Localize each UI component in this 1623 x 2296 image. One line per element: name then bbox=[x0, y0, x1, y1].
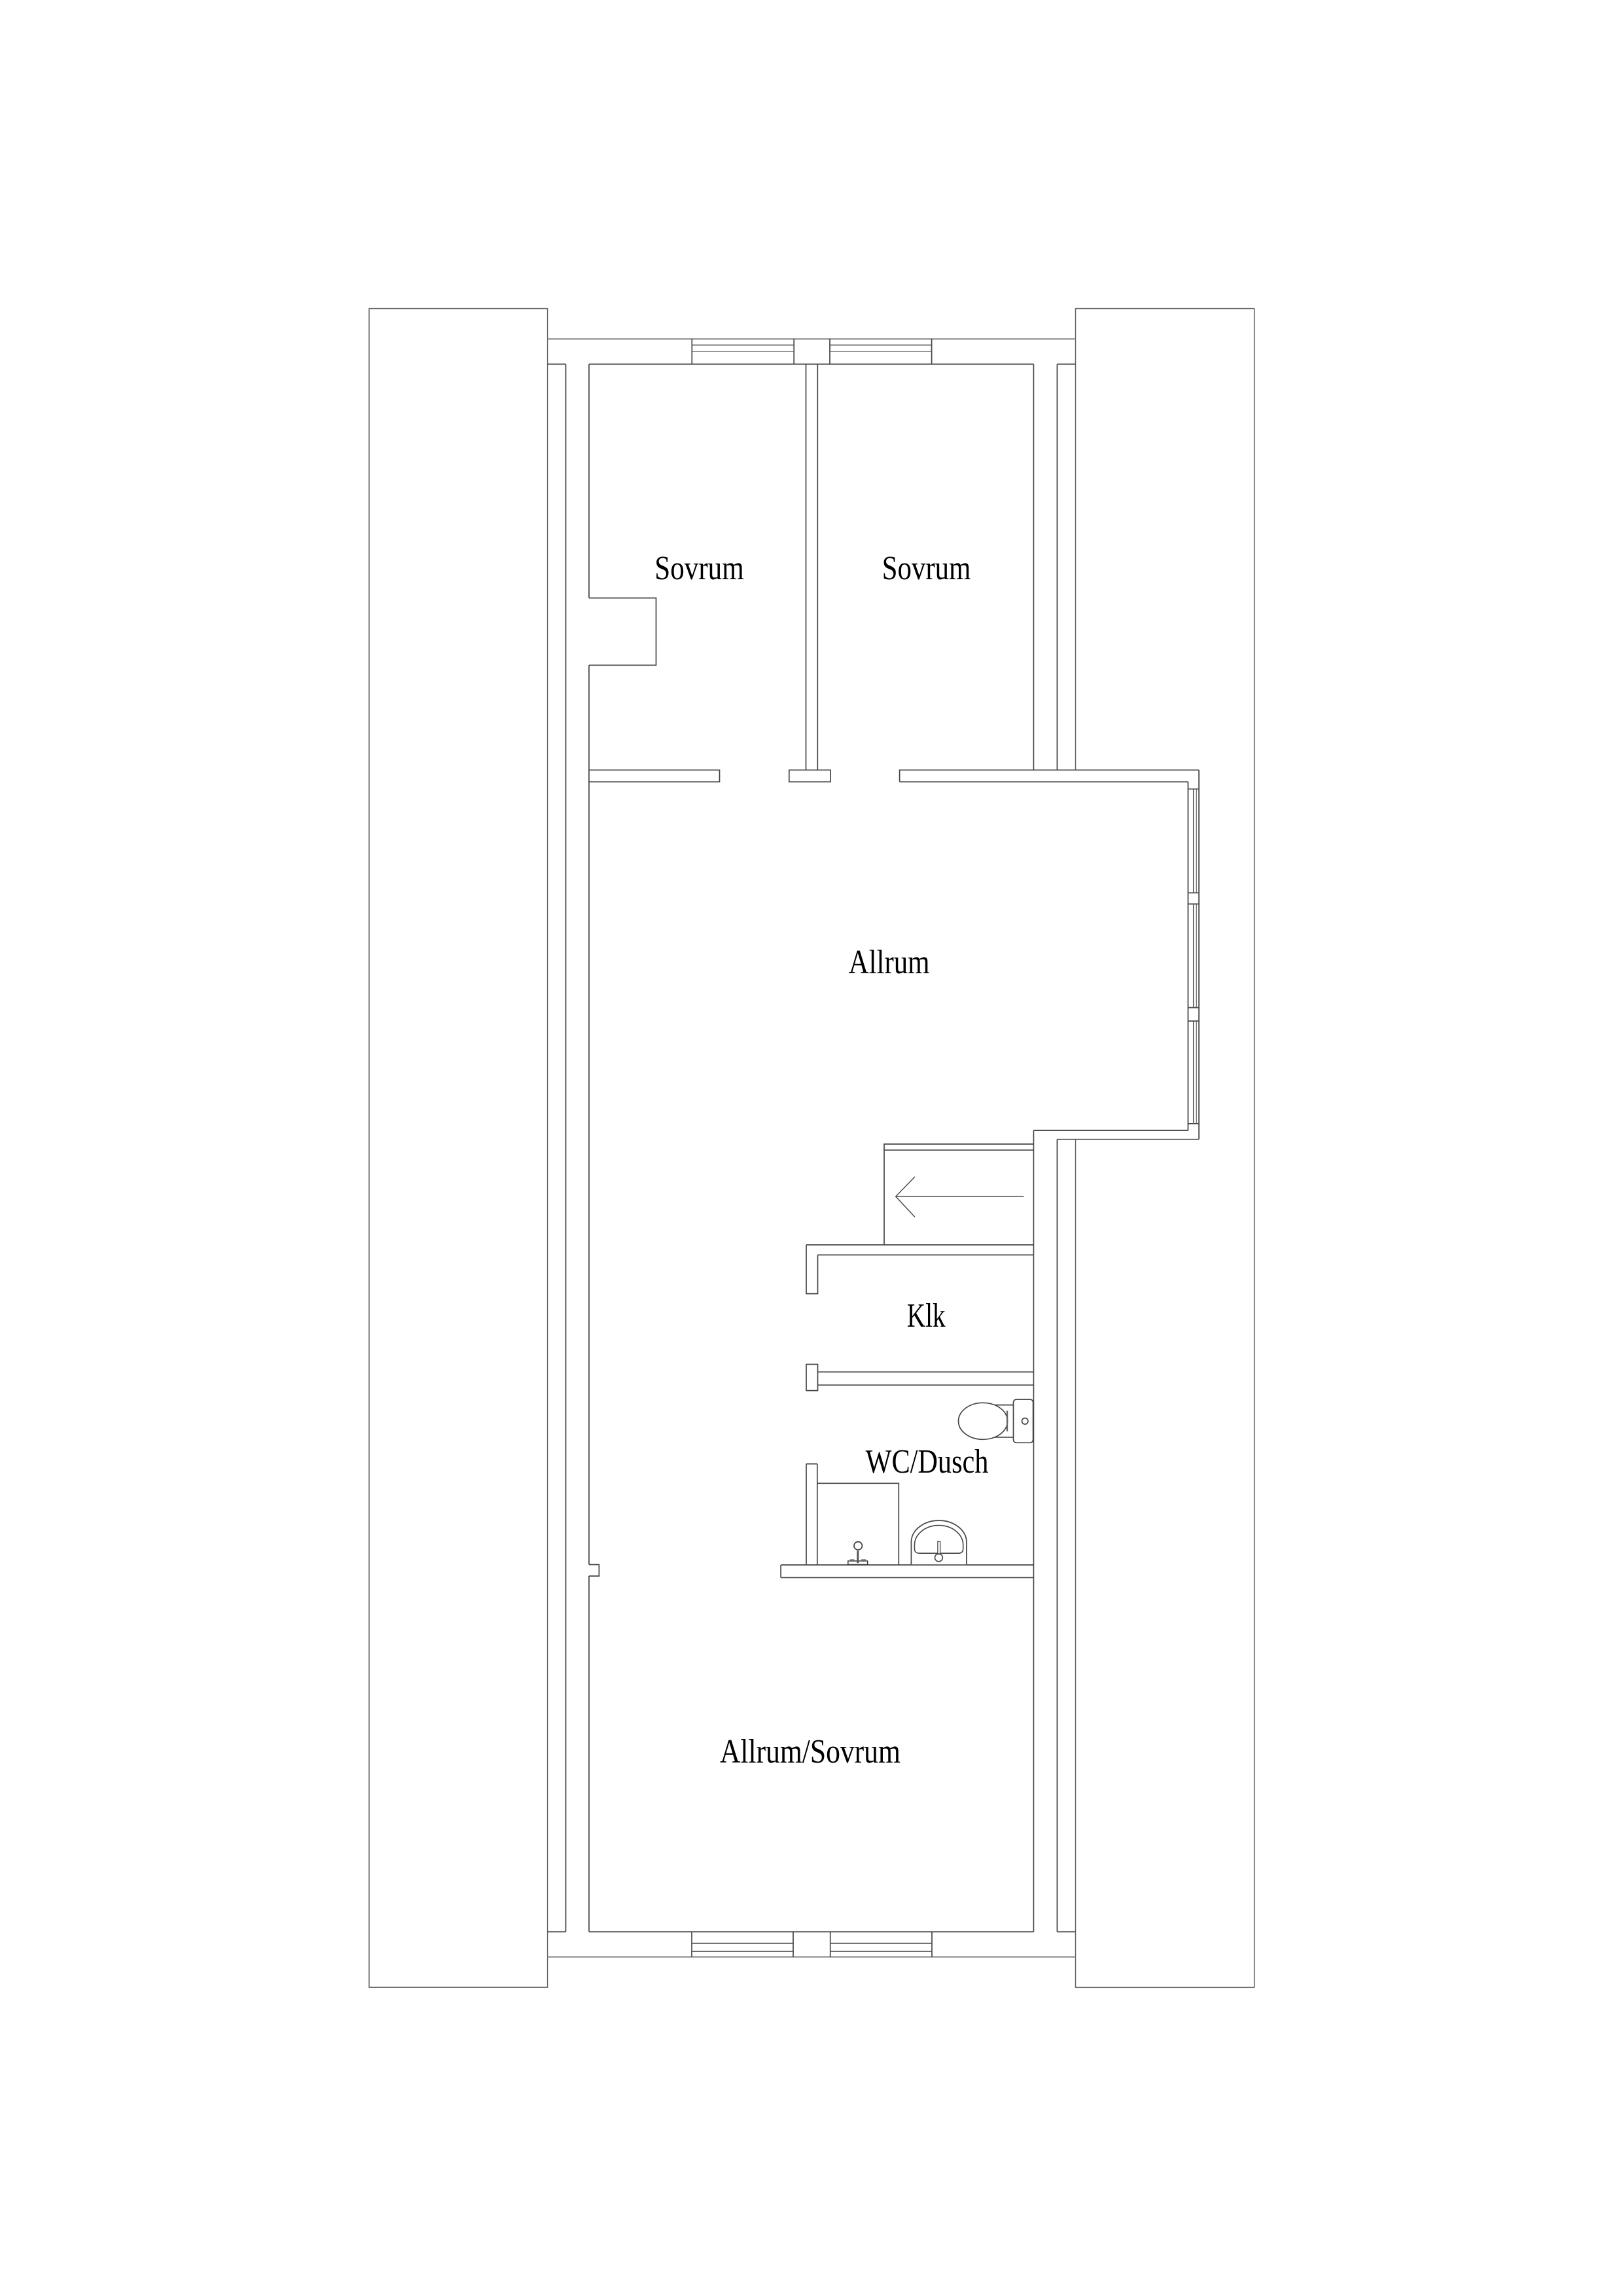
svg-text:Allrum/Sovrum: Allrum/Sovrum bbox=[720, 1733, 901, 1770]
svg-text:Klk: Klk bbox=[907, 1297, 946, 1335]
svg-text:Allrum: Allrum bbox=[849, 944, 930, 981]
svg-text:Sovrum: Sovrum bbox=[882, 550, 971, 587]
svg-text:Sovrum: Sovrum bbox=[654, 550, 743, 587]
svg-text:WC/Dusch: WC/Dusch bbox=[866, 1443, 989, 1480]
